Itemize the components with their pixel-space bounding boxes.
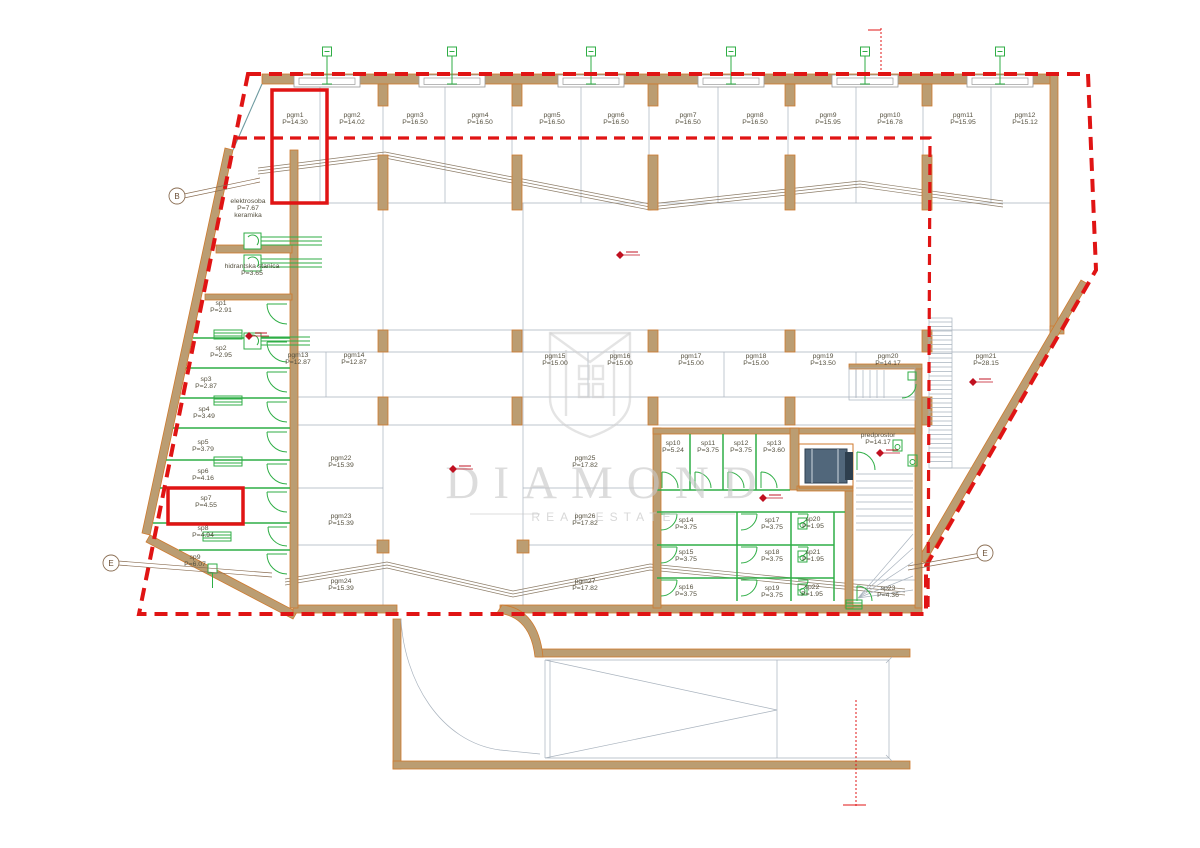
room-label-sp7: sp7P=4.55 — [195, 495, 217, 509]
elevation-marker-icon — [616, 251, 640, 259]
door-arc-icon — [267, 402, 287, 422]
watermark-subtitle: REAL ESTATE — [531, 510, 676, 524]
room-label-sp5: sp5P=3.79 — [192, 439, 214, 453]
room-label-pgm4: pgm4P=16.50 — [467, 112, 493, 126]
room-label-sp3: sp3P=2.87 — [195, 376, 217, 390]
room-label-pgm8: pgm8P=16.50 — [742, 112, 768, 126]
room-label-pgm1: pgm1P=14.30 — [282, 112, 308, 126]
room-label-pgm10: pgm10P=16.78 — [877, 112, 903, 126]
pier — [648, 84, 658, 106]
room-label-pgm19: pgm19P=13.50 — [810, 353, 836, 367]
pier — [785, 84, 795, 106]
elevation-marker-icon — [969, 378, 993, 386]
room-label-sp10: sp10P=5.24 — [662, 440, 684, 454]
door-arc-icon — [267, 304, 287, 324]
pier — [648, 330, 658, 352]
pier — [648, 155, 658, 210]
room-label-sp21: sp21P=1.95 — [802, 549, 824, 563]
room-label-sp4: sp4P=3.49 — [193, 406, 215, 420]
room-label-hidrantska-stanica: hidrantska stanicaP=3.65 — [225, 263, 280, 277]
room-label-sp20: sp20P=1.95 — [802, 516, 824, 530]
pier — [377, 540, 389, 553]
door-arc-icon — [267, 492, 287, 512]
stairs-icon — [849, 368, 915, 598]
room-label-sp1: sp1P=2.91 — [210, 300, 232, 314]
room-label-pgm12: pgm12P=15.12 — [1012, 112, 1038, 126]
drainage-line — [258, 155, 1003, 207]
svg-text:E: E — [982, 549, 987, 558]
room-labels: pgm1P=14.30pgm2P=14.02pgm3P=16.50pgm4P=1… — [184, 112, 1038, 599]
highlight-box — [272, 90, 327, 203]
room-label-pgm17: pgm17P=15.00 — [678, 353, 704, 367]
room-label-pgm18: pgm18P=15.00 — [743, 353, 769, 367]
room-label-elektrosoba: elektrosobaP=7.67keramika — [230, 198, 265, 219]
pier — [785, 330, 795, 352]
pier — [512, 84, 522, 106]
room-label-sp16: sp16P=3.75 — [675, 584, 697, 598]
drainage-line — [258, 158, 1003, 210]
parcel-boundary-inner — [236, 138, 930, 612]
room-label-pgm3: pgm3P=16.50 — [402, 112, 428, 126]
room-label-pgm9: pgm9P=15.95 — [815, 112, 841, 126]
room-label-pgm7: pgm7P=16.50 — [675, 112, 701, 126]
room-label-sp6: sp6P=4.16 — [192, 468, 214, 482]
room-label-sp23: sp23P=4.36 — [877, 585, 899, 599]
door-arc-icon — [268, 527, 287, 546]
room-label-pgm16: pgm16P=15.00 — [607, 353, 633, 367]
door-arc-icon — [741, 547, 757, 563]
pier — [922, 84, 932, 106]
elevator-icon — [799, 444, 853, 488]
pier — [648, 397, 658, 425]
room-label-pgm27: pgm27P=17.82 — [572, 578, 598, 592]
room-label-sp14: sp14P=3.75 — [675, 517, 697, 531]
room-label-sp12: sp12P=3.75 — [730, 440, 752, 454]
door-arc-icon — [741, 514, 757, 530]
room-label-sp17: sp17P=3.75 — [761, 517, 783, 531]
pier — [378, 397, 388, 425]
room-label-pgm22: pgm22P=15.39 — [328, 455, 354, 469]
floor-plan-page: DIAMOND REAL ESTATE pgm1P=14.30pgm2P=14.… — [0, 0, 1200, 848]
door-arc-icon — [741, 580, 757, 596]
pier — [378, 155, 388, 210]
grille-icon — [214, 457, 242, 466]
room-label-sp19: sp19P=3.75 — [761, 585, 783, 599]
door-arc-icon — [267, 554, 287, 574]
ramp — [401, 619, 892, 761]
pier — [517, 540, 529, 553]
pier — [512, 155, 522, 210]
room-label-pgm11: pgm11P=15.95 — [950, 112, 976, 126]
room-label-sp8: sp8P=4.94 — [192, 525, 214, 539]
room-label-pgm20: pgm20P=14.17 — [875, 353, 901, 367]
door-arc-icon — [267, 372, 287, 392]
room-label-pgm25: pgm25P=17.82 — [572, 455, 598, 469]
svg-text:E: E — [108, 559, 113, 568]
room-label-pgm21: pgm21P=28.15 — [973, 353, 999, 367]
pier — [378, 330, 388, 352]
pier — [512, 330, 522, 352]
door-arc-icon — [267, 432, 287, 452]
watermark-title: DIAMOND — [445, 457, 770, 509]
pier — [378, 84, 388, 106]
svg-text:B: B — [174, 192, 179, 201]
room-label-sp22: sp22P=1.95 — [801, 584, 823, 598]
door-arc-icon — [857, 452, 875, 470]
room-label-pgm23: pgm23P=15.39 — [328, 513, 354, 527]
room-label-sp2: sp2P=2.95 — [210, 345, 232, 359]
room-label-pgm2: pgm2P=14.02 — [339, 112, 365, 126]
room-label-pgm5: pgm5P=16.50 — [539, 112, 565, 126]
parcel-boundary — [139, 28, 1096, 808]
ramp-wall — [393, 619, 401, 769]
pier — [785, 155, 795, 210]
room-label-sp18: sp18P=3.75 — [761, 549, 783, 563]
room-label-pgm6: pgm6P=16.50 — [603, 112, 629, 126]
pier — [785, 397, 795, 425]
room-label-pgm24: pgm24P=15.39 — [328, 578, 354, 592]
room-label-sp11: sp11P=3.75 — [697, 440, 719, 454]
room-label-pgm15: pgm15P=15.00 — [542, 353, 568, 367]
room-label-sp15: sp15P=3.75 — [675, 549, 697, 563]
pier — [512, 397, 522, 425]
room-label-predprostor: predprostorP=14.17 — [861, 432, 896, 446]
elevation-marker-icon — [759, 494, 783, 502]
exterior-stair-hatch — [929, 318, 952, 468]
door-arc-icon — [267, 464, 287, 484]
room-label-pgm13: pgm13P=12.87 — [285, 352, 311, 366]
floor-plan-canvas: DIAMOND REAL ESTATE pgm1P=14.30pgm2P=14.… — [0, 0, 1200, 848]
plumbing-fixtures — [203, 233, 917, 595]
parcel-boundary-outer — [139, 74, 1096, 614]
elevation-marker-icon — [876, 449, 900, 457]
door-exterior — [902, 372, 916, 398]
room-label-sp13: sp13P=3.60 — [763, 440, 785, 454]
room-label-pgm26: pgm26P=17.82 — [572, 513, 598, 527]
room-label-pgm14: pgm14P=12.87 — [341, 352, 367, 366]
